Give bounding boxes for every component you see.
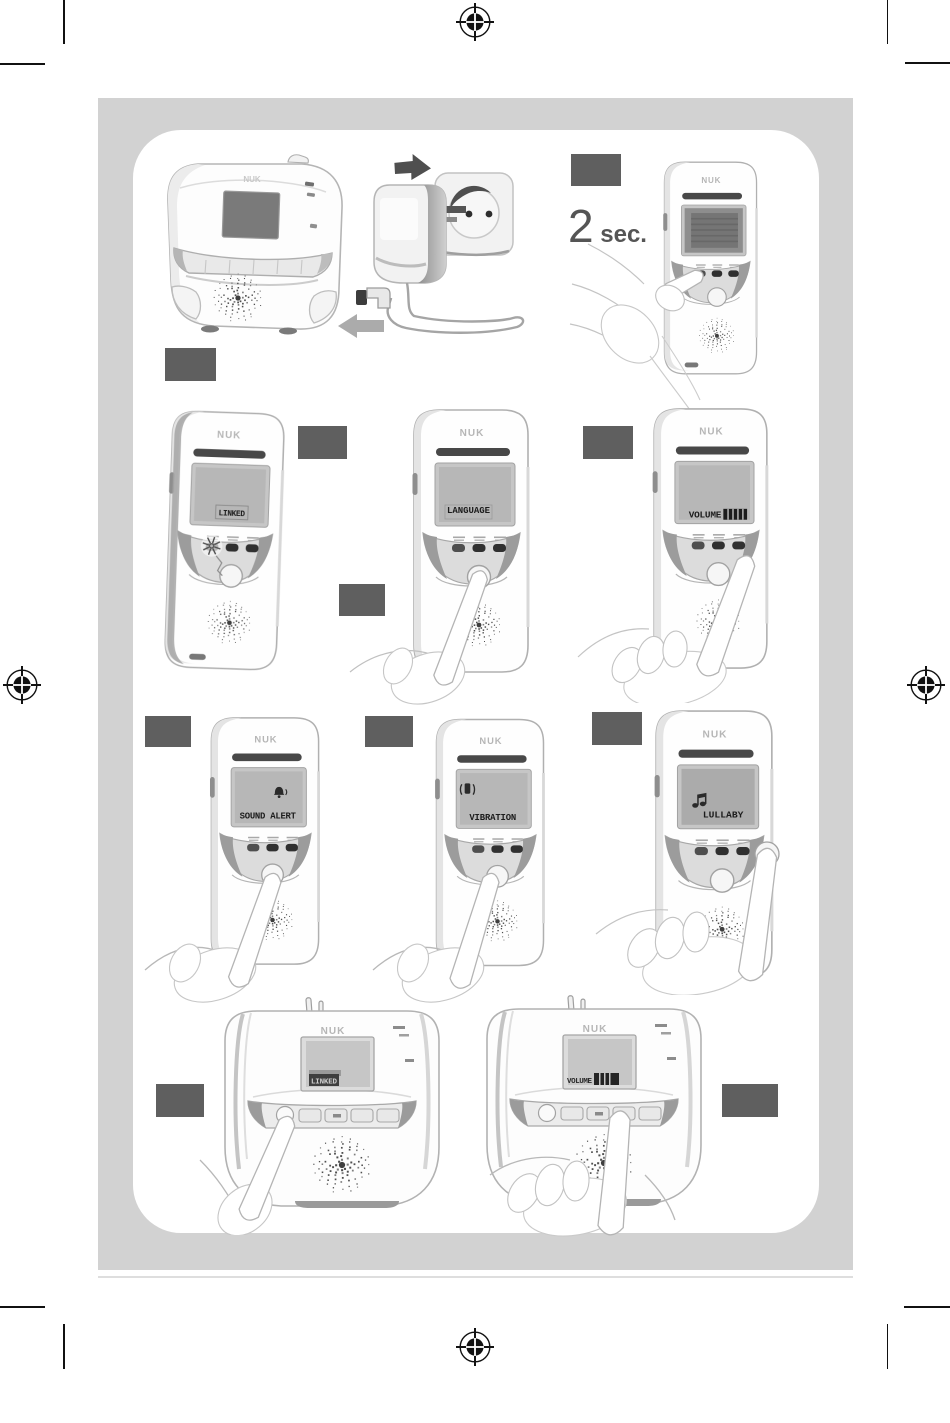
svg-text:NUK: NUK — [243, 175, 261, 184]
svg-text:LULLABY: LULLABY — [703, 810, 744, 821]
svg-text:VOLUME: VOLUME — [689, 510, 722, 521]
svg-text:LANGUAGE: LANGUAGE — [447, 506, 491, 516]
svg-text:VOLUME: VOLUME — [567, 1078, 592, 1086]
svg-text:SOUND ALERT: SOUND ALERT — [240, 811, 297, 821]
svg-text:LINKED: LINKED — [311, 1079, 337, 1087]
svg-text:VIBRATION: VIBRATION — [469, 813, 516, 823]
svg-text:LINKED: LINKED — [218, 509, 245, 519]
